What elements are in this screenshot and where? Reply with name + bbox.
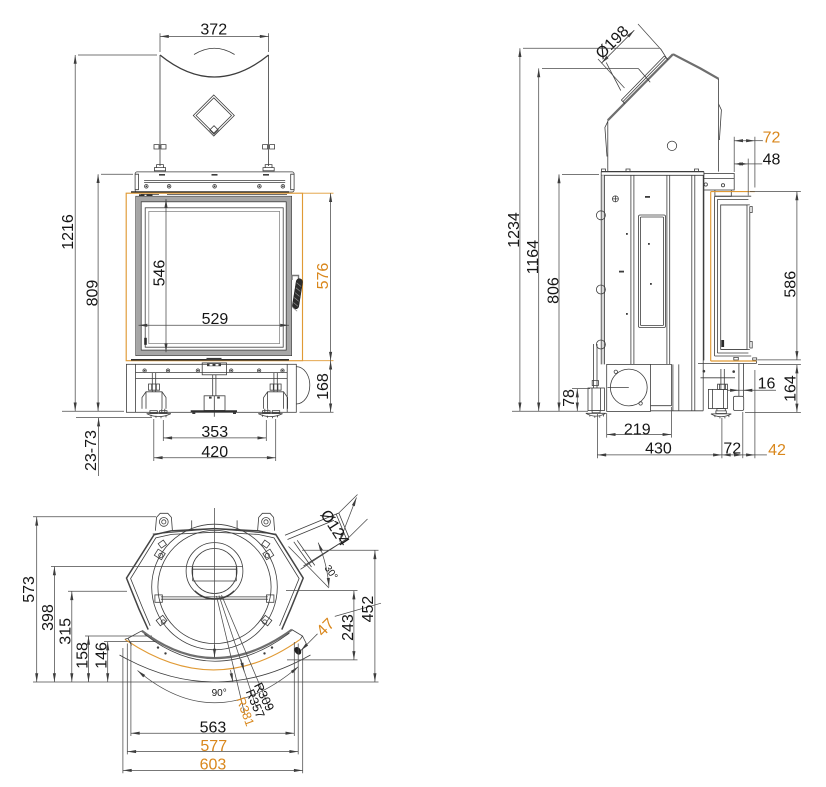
svg-text:16: 16	[758, 376, 776, 393]
svg-text:48: 48	[763, 152, 781, 169]
svg-text:23-73: 23-73	[83, 430, 100, 471]
svg-text:1216: 1216	[60, 214, 77, 250]
svg-text:586: 586	[782, 271, 799, 298]
svg-text:72: 72	[723, 441, 741, 458]
svg-text:42: 42	[768, 442, 786, 459]
svg-text:353: 353	[201, 424, 228, 441]
svg-text:1234: 1234	[506, 212, 523, 248]
svg-text:452: 452	[360, 596, 377, 623]
svg-text:806: 806	[546, 277, 563, 304]
svg-text:72: 72	[763, 129, 781, 146]
svg-text:430: 430	[645, 441, 672, 458]
svg-text:577: 577	[200, 738, 227, 755]
svg-text:420: 420	[201, 444, 228, 461]
svg-text:1164: 1164	[525, 240, 542, 275]
svg-text:546: 546	[152, 260, 169, 287]
svg-text:219: 219	[624, 421, 651, 438]
svg-text:372: 372	[200, 22, 227, 39]
svg-text:398: 398	[40, 604, 57, 631]
svg-text:146: 146	[94, 642, 111, 669]
svg-text:315: 315	[57, 618, 74, 645]
svg-text:158: 158	[75, 642, 92, 669]
svg-text:563: 563	[200, 719, 227, 736]
svg-text:573: 573	[21, 576, 38, 603]
svg-text:809: 809	[85, 280, 102, 307]
svg-text:164: 164	[782, 375, 799, 402]
svg-text:90°: 90°	[212, 688, 227, 699]
svg-text:243: 243	[340, 614, 357, 641]
svg-text:576: 576	[315, 263, 332, 290]
svg-text:603: 603	[200, 757, 227, 774]
svg-text:529: 529	[202, 311, 229, 328]
svg-text:78: 78	[561, 389, 578, 407]
svg-text:168: 168	[315, 373, 332, 400]
